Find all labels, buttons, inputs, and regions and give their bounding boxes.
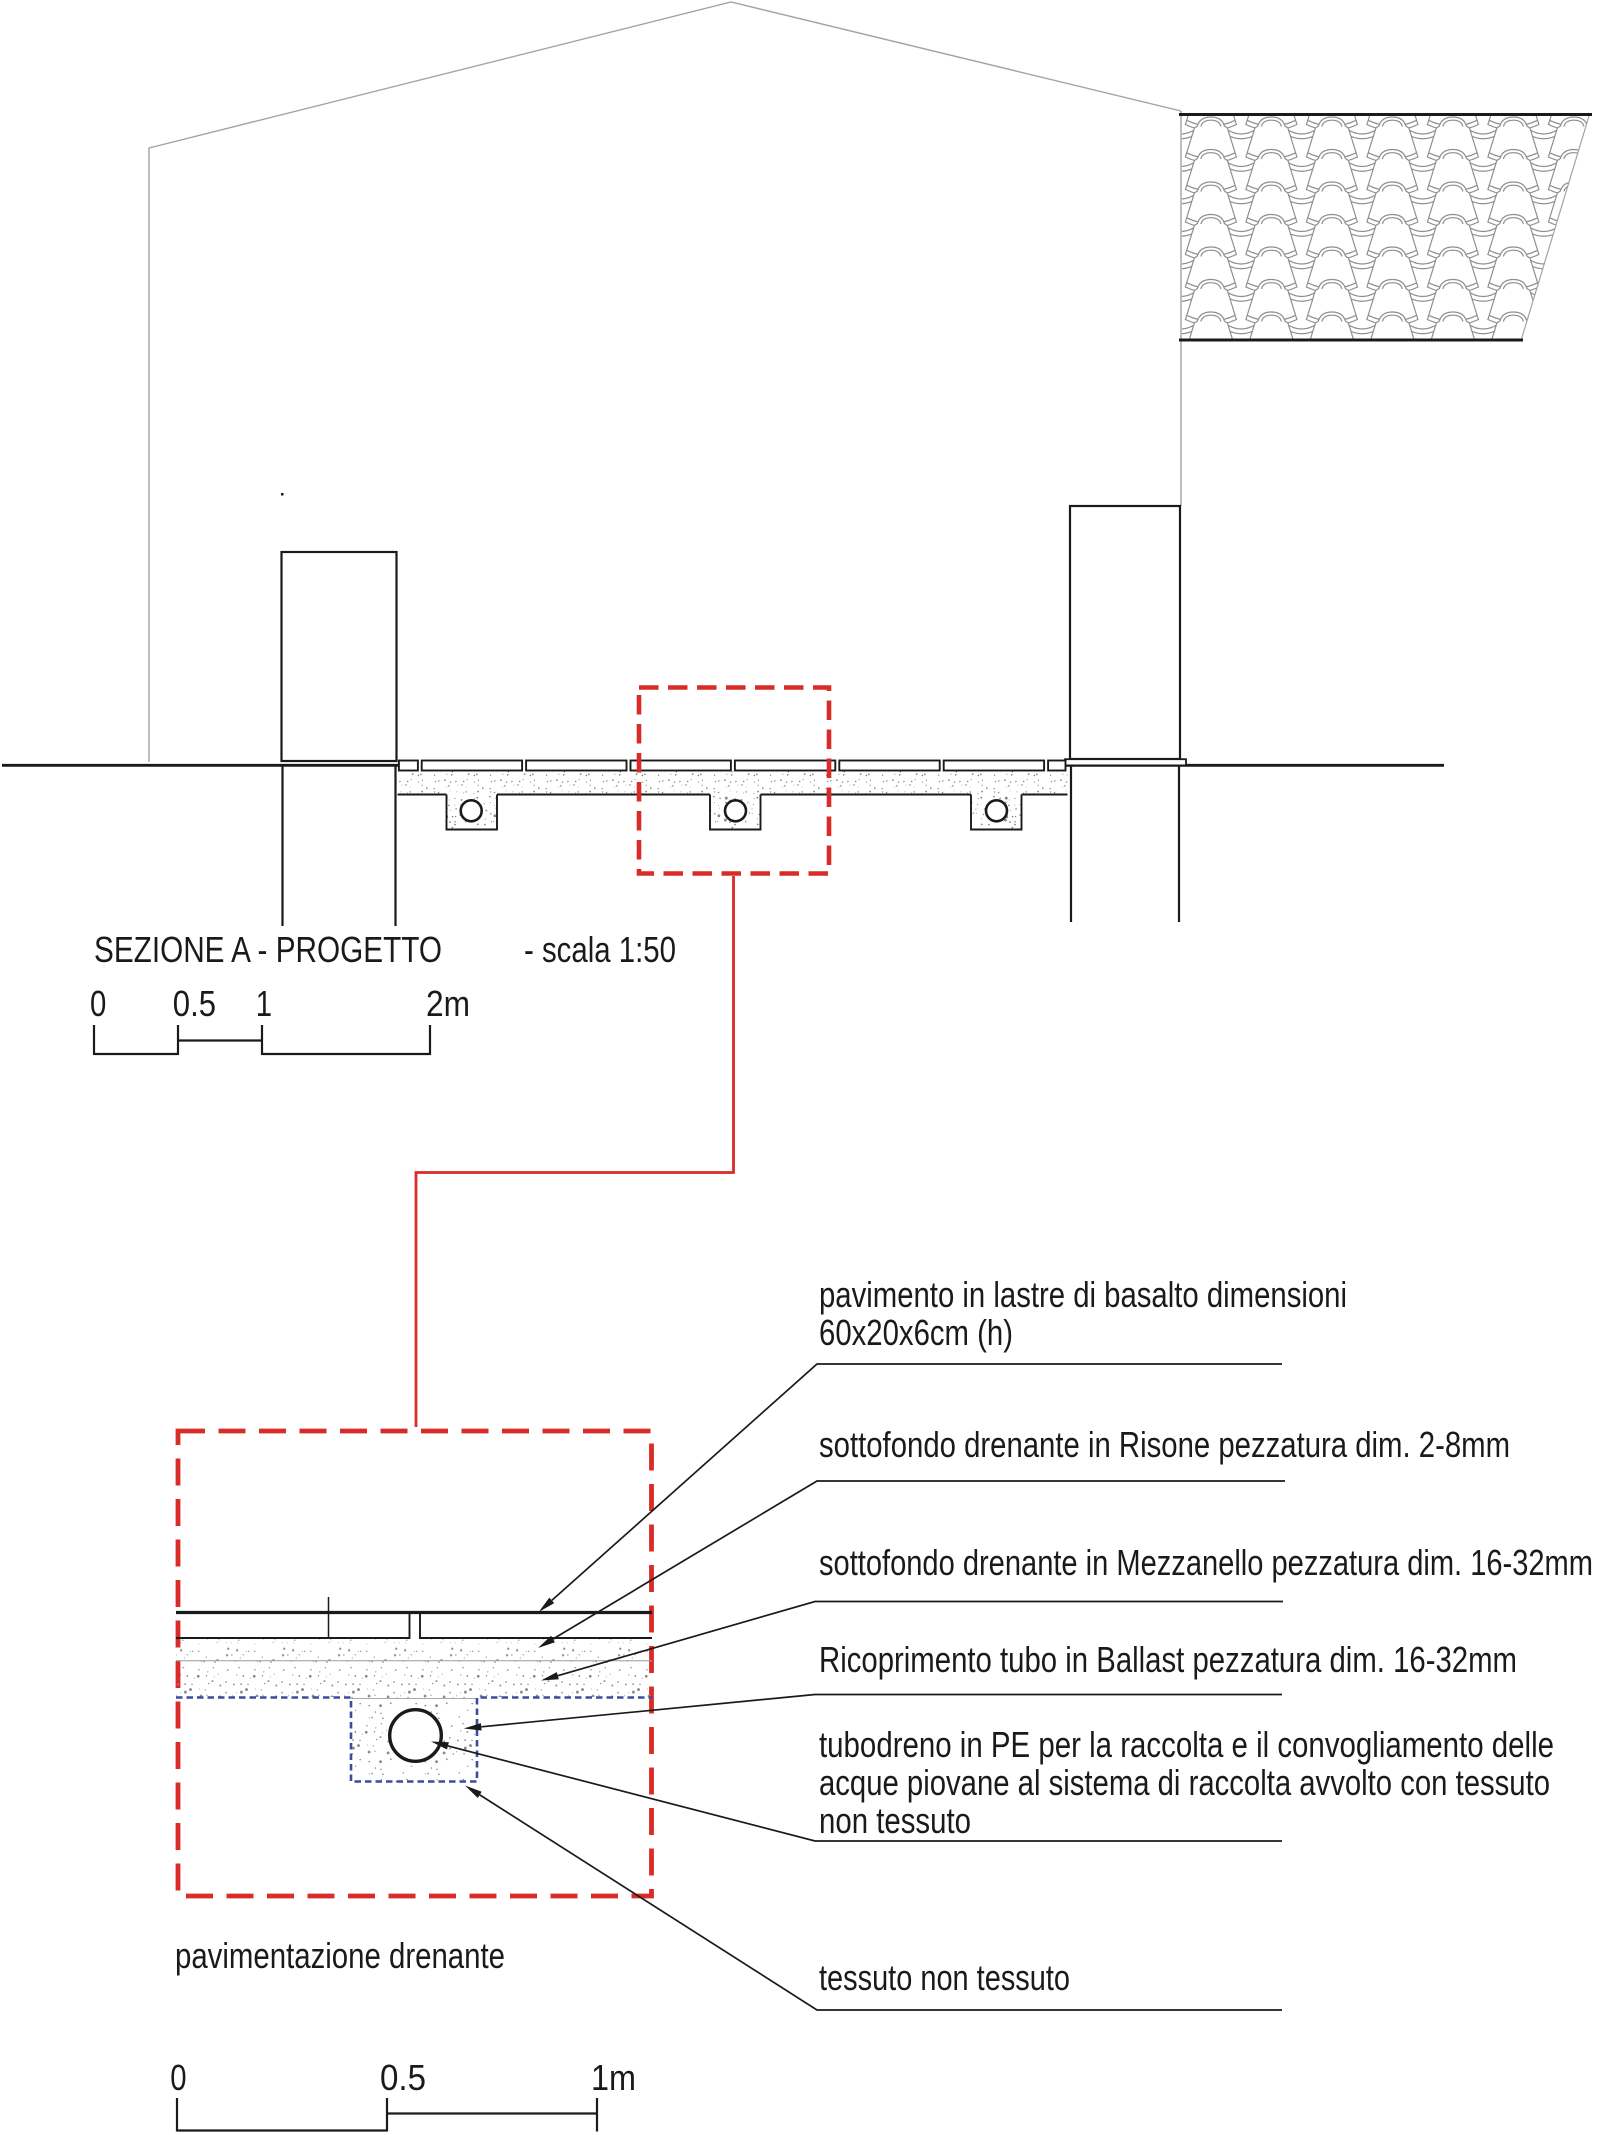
- svg-text:1m: 1m: [591, 2057, 636, 2098]
- svg-text:acque piovane al sistema di ra: acque piovane al sistema di raccolta avv…: [819, 1762, 1550, 1803]
- svg-text:0: 0: [170, 2057, 186, 2098]
- svg-text:non tessuto: non tessuto: [819, 1800, 971, 1841]
- svg-text:pavimentazione drenante: pavimentazione drenante: [175, 1935, 505, 1976]
- svg-text:tessuto non tessuto: tessuto non tessuto: [819, 1957, 1070, 1998]
- svg-text:2m: 2m: [426, 983, 470, 1024]
- svg-text:60x20x6cm (h): 60x20x6cm (h): [819, 1312, 1013, 1353]
- svg-text:sottofondo drenante in Risone: sottofondo drenante in Risone pezzatura …: [819, 1424, 1510, 1465]
- svg-text:- scala 1:50: - scala 1:50: [524, 929, 676, 970]
- svg-text:Ricoprimento tubo in Ballast p: Ricoprimento tubo in Ballast pezzatura d…: [819, 1639, 1517, 1680]
- svg-text:pavimento in lastre di basalto: pavimento in lastre di basalto dimension…: [819, 1274, 1347, 1315]
- svg-text:0: 0: [90, 983, 106, 1024]
- svg-text:1: 1: [256, 983, 272, 1024]
- svg-text:0.5: 0.5: [173, 983, 216, 1024]
- svg-text:0.5: 0.5: [380, 2057, 426, 2098]
- svg-text:tubodreno in PE per la raccolt: tubodreno in PE per la raccolta e il con…: [819, 1724, 1554, 1765]
- svg-text:sottofondo drenante in Mezzane: sottofondo drenante in Mezzanello pezzat…: [819, 1542, 1593, 1583]
- svg-text:SEZIONE A - PROGETTO: SEZIONE A - PROGETTO: [94, 929, 442, 970]
